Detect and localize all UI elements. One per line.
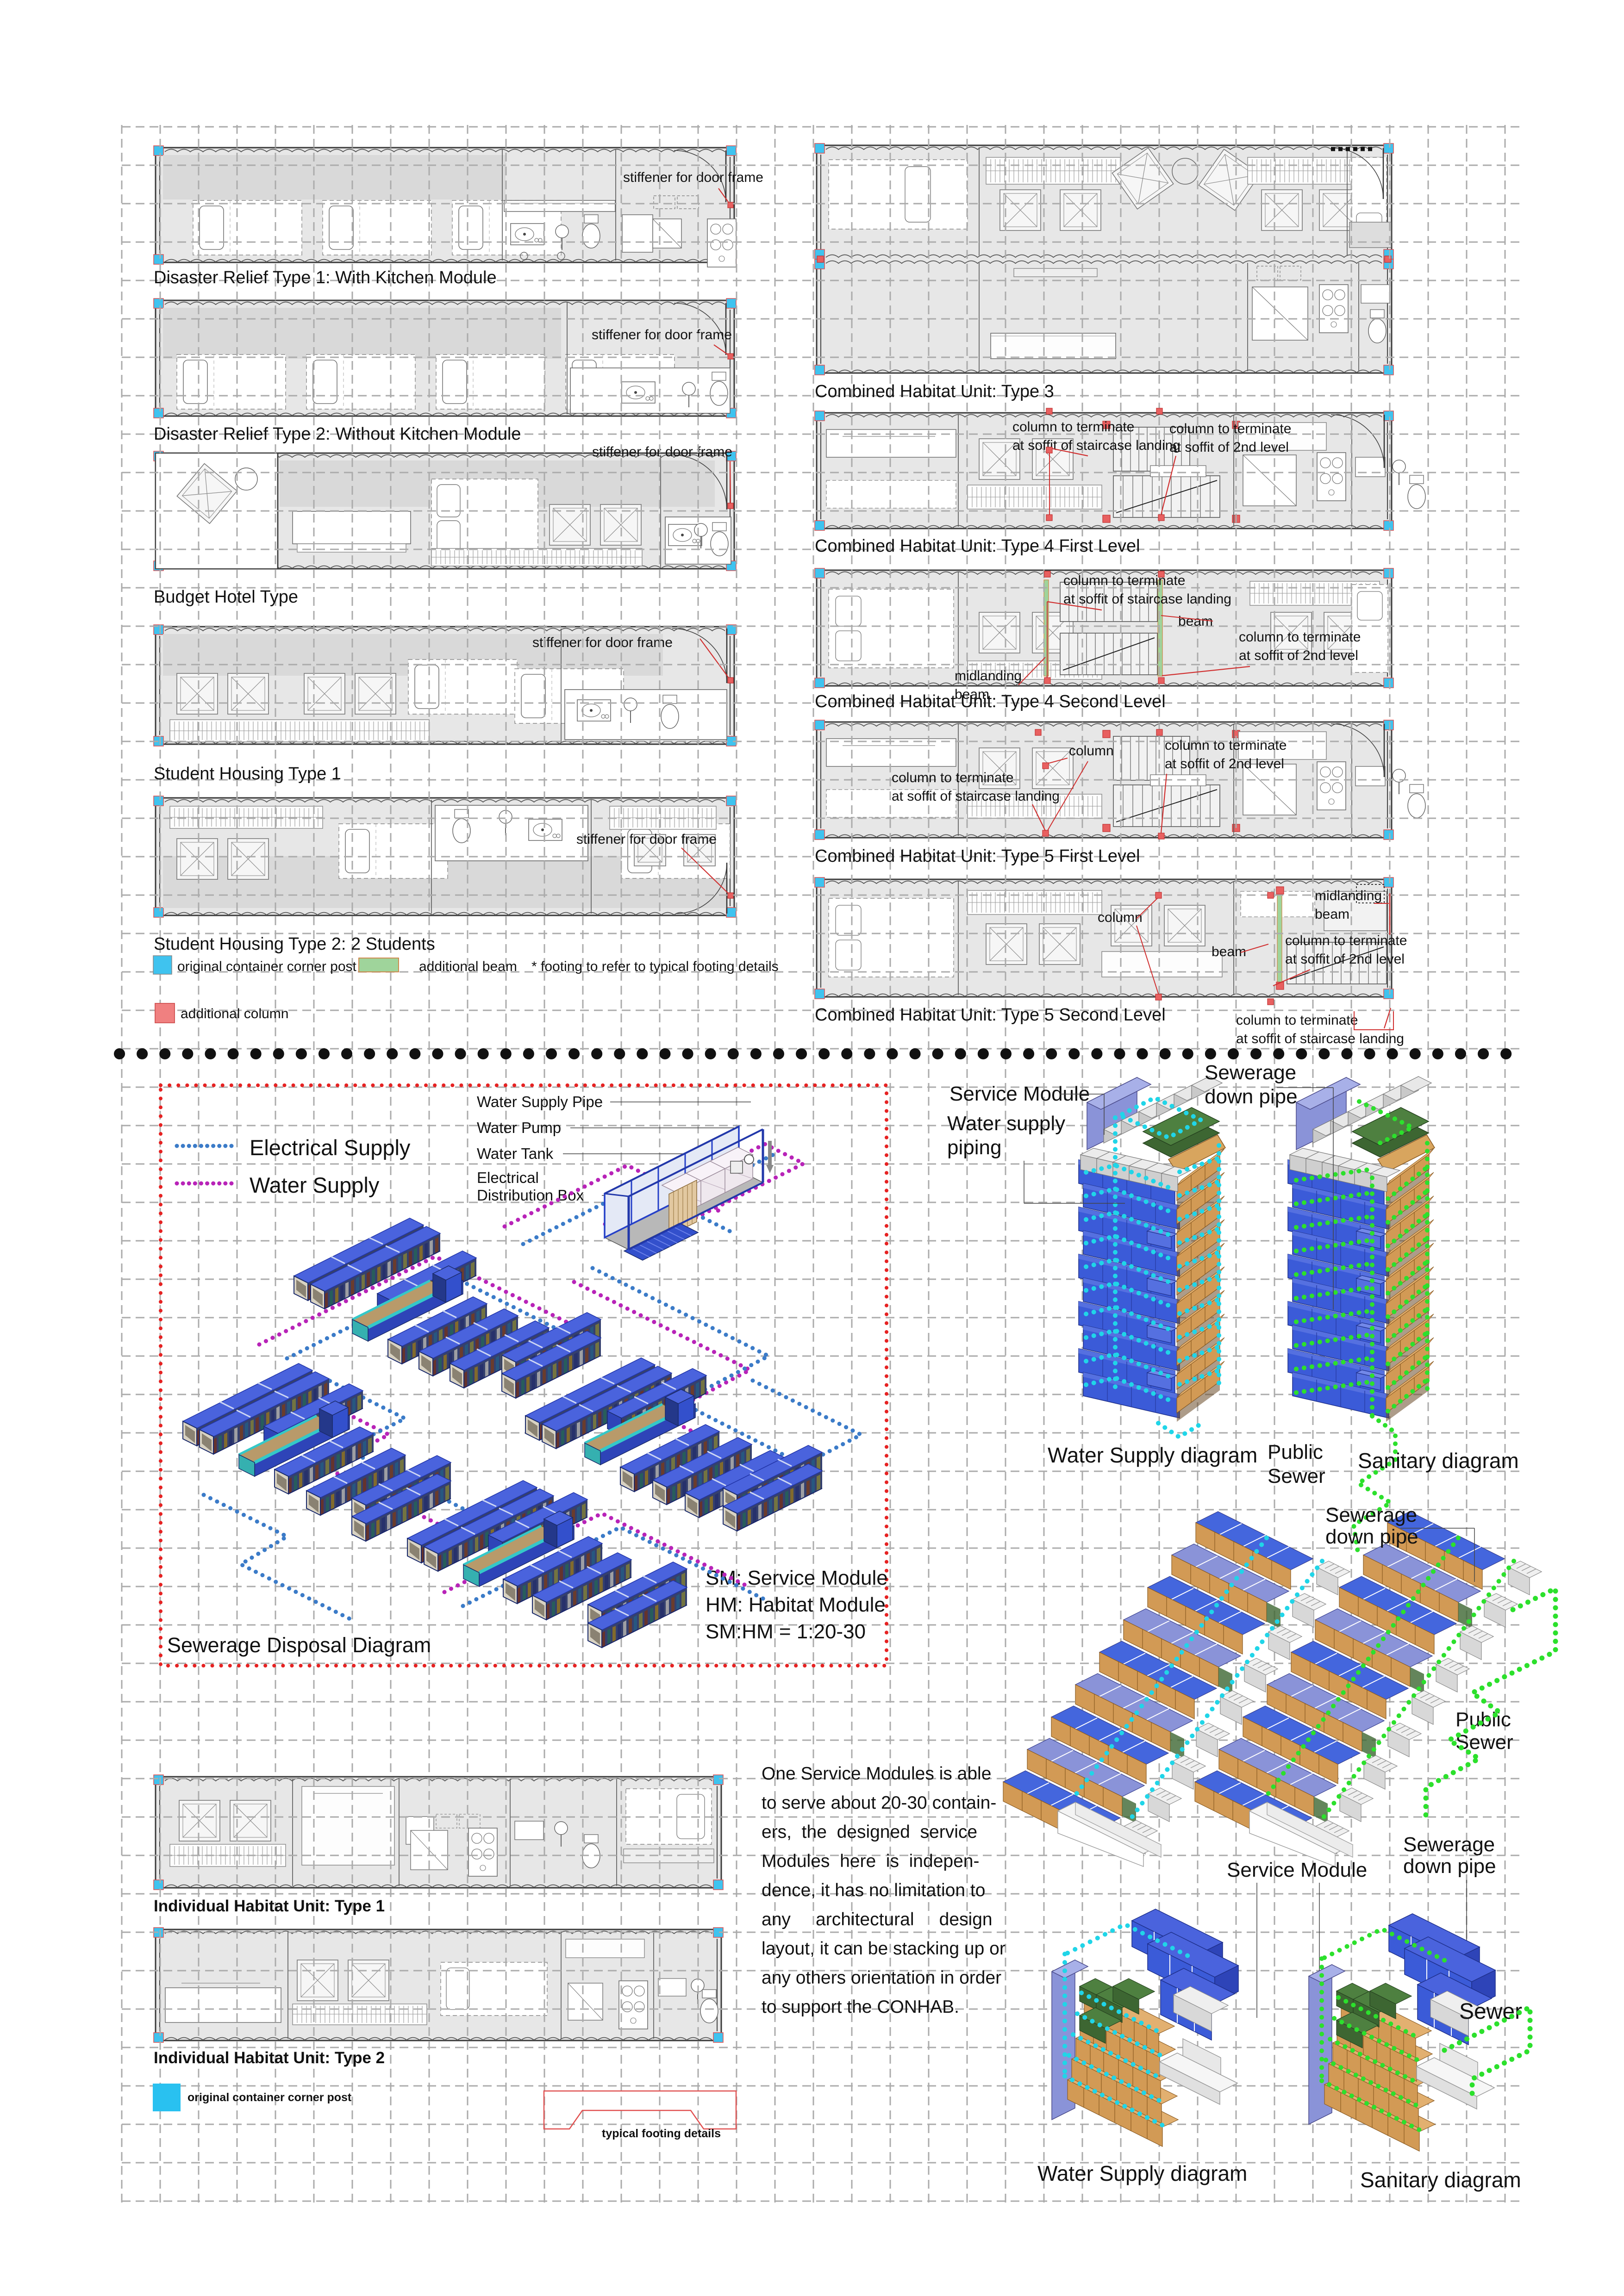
svg-text:* footing to refer to typical: * footing to refer to typical footing de… xyxy=(531,959,779,974)
svg-text:column to terminate: column to terminate xyxy=(1285,933,1407,948)
svg-text:to support the CONHAB.: to support the CONHAB. xyxy=(762,1997,959,2017)
svg-text:Combined Habitat Unit: Type 5: Combined Habitat Unit: Type 5 Second Lev… xyxy=(815,1005,1166,1025)
svg-text:Water Supply diagram: Water Supply diagram xyxy=(1037,2161,1247,2185)
svg-text:stiffener for door frame: stiffener for door frame xyxy=(592,327,732,342)
svg-text:additional beam: additional beam xyxy=(419,959,517,974)
svg-text:at soffit of 2nd level: at soffit of 2nd level xyxy=(1285,952,1405,967)
svg-text:Public: Public xyxy=(1268,1441,1323,1463)
svg-text:at soffit of staircase landing: at soffit of staircase landing xyxy=(1236,1031,1404,1046)
svg-text:Water supply: Water supply xyxy=(947,1112,1065,1135)
svg-text:beam: beam xyxy=(955,687,989,702)
svg-text:original container corner post: original container corner post xyxy=(177,959,357,974)
svg-text:Student Housing Type 2: 2 Stud: Student Housing Type 2: 2 Students xyxy=(154,934,435,954)
svg-text:Sewerage: Sewerage xyxy=(1205,1061,1296,1084)
svg-text:piping: piping xyxy=(947,1136,1001,1159)
svg-text:stiffener for door frame: stiffener for door frame xyxy=(623,170,763,185)
svg-text:column to terminate: column to terminate xyxy=(1236,1013,1358,1028)
svg-text:typical footing details: typical footing details xyxy=(602,2127,721,2140)
svg-text:SM:HM = 1:20-30: SM:HM = 1:20-30 xyxy=(706,1620,866,1643)
svg-text:column: column xyxy=(1069,743,1114,759)
svg-text:Combined Habitat Unit: Type 4: Combined Habitat Unit: Type 4 First Leve… xyxy=(815,536,1140,556)
svg-text:column to terminate: column to terminate xyxy=(1063,573,1185,588)
svg-text:Disaster Relief Type 1: With K: Disaster Relief Type 1: With Kitchen Mod… xyxy=(154,268,497,287)
svg-text:Budget Hotel Type: Budget Hotel Type xyxy=(154,587,298,607)
svg-text:Individual Habitat Unit: Type: Individual Habitat Unit: Type 1 xyxy=(154,1897,385,1915)
svg-text:original container corner post: original container corner post xyxy=(187,2091,352,2104)
svg-text:Sewer: Sewer xyxy=(1268,1465,1325,1487)
svg-text:Electrical Supply: Electrical Supply xyxy=(250,1135,411,1160)
svg-text:Modules here is indepen-: Modules here is indepen- xyxy=(762,1851,979,1871)
svg-text:Electrical: Electrical xyxy=(477,1169,539,1186)
svg-text:column to terminate: column to terminate xyxy=(1239,629,1361,645)
svg-text:Individual Habitat Unit: Type: Individual Habitat Unit: Type 2 xyxy=(154,2049,385,2067)
svg-text:any others orientation in orde: any others orientation in order xyxy=(762,1968,1001,1988)
svg-text:ers, the designed service: ers, the designed service xyxy=(762,1822,977,1842)
svg-text:Sewer: Sewer xyxy=(1455,1731,1513,1754)
svg-text:Service Module: Service Module xyxy=(1227,1859,1367,1881)
svg-text:Water Supply: Water Supply xyxy=(250,1173,380,1197)
svg-text:One Service Modules is able: One Service Modules is able xyxy=(762,1764,991,1784)
svg-text:beam: beam xyxy=(1178,614,1213,629)
svg-text:column to terminate: column to terminate xyxy=(1169,421,1291,436)
svg-text:Combined Habitat Unit: Type 4: Combined Habitat Unit: Type 4 Second Lev… xyxy=(815,692,1166,711)
svg-text:any architectural desi: any architectural design xyxy=(762,1910,993,1929)
svg-text:Water Supply Pipe: Water Supply Pipe xyxy=(477,1093,603,1110)
svg-text:down pipe: down pipe xyxy=(1403,1855,1496,1878)
svg-text:stiffener for door frame: stiffener for door frame xyxy=(592,444,732,460)
svg-text:Sewerage: Sewerage xyxy=(1403,1833,1495,1856)
svg-text:Sanitary diagram: Sanitary diagram xyxy=(1360,2168,1521,2192)
svg-text:Public: Public xyxy=(1455,1708,1511,1731)
svg-text:HM: Habitat Module: HM: Habitat Module xyxy=(706,1593,886,1616)
svg-text:column: column xyxy=(1098,910,1143,925)
svg-text:additional column: additional column xyxy=(181,1006,288,1021)
svg-text:Combined Habitat Unit: Type 5: Combined Habitat Unit: Type 5 First Leve… xyxy=(815,846,1140,866)
svg-text:Sewer: Sewer xyxy=(1459,1999,1522,2024)
svg-text:column to terminate: column to terminate xyxy=(1012,419,1134,435)
svg-text:Disaster Relief Type 2: Withou: Disaster Relief Type 2: Without Kitchen … xyxy=(154,424,521,444)
svg-text:down pipe: down pipe xyxy=(1205,1085,1298,1108)
svg-text:at soffit of 2nd level: at soffit of 2nd level xyxy=(1169,440,1289,455)
svg-text:Sewerage: Sewerage xyxy=(1325,1504,1417,1526)
svg-text:Student Housing Type 1: Student Housing Type 1 xyxy=(154,764,341,784)
svg-text:Sewerage Disposal Diagram: Sewerage Disposal Diagram xyxy=(167,1633,431,1657)
svg-text:column to terminate: column to terminate xyxy=(1165,738,1287,753)
svg-text:midlanding: midlanding xyxy=(955,668,1022,684)
svg-text:Water Tank: Water Tank xyxy=(477,1145,554,1162)
svg-text:dence, it has no limitation to: dence, it has no limitation to xyxy=(762,1880,985,1900)
svg-text:at soffit of staircase landing: at soffit of staircase landing xyxy=(1063,591,1231,607)
svg-text:to serve about 20-30 contain-: to serve about 20-30 contain- xyxy=(762,1793,996,1813)
svg-text:at soffit of 2nd level: at soffit of 2nd level xyxy=(1239,648,1358,663)
svg-text:Combined Habitat Unit: Type 3: Combined Habitat Unit: Type 3 xyxy=(815,382,1054,401)
svg-text:at soffit of 2nd level: at soffit of 2nd level xyxy=(1165,756,1284,772)
svg-text:stiffener for door frame: stiffener for door frame xyxy=(576,832,717,847)
svg-text:column to terminate: column to terminate xyxy=(892,770,1013,785)
svg-text:beam: beam xyxy=(1315,907,1349,922)
svg-text:at soffit of staircase landing: at soffit of staircase landing xyxy=(892,789,1060,804)
svg-text:Distribution Box: Distribution Box xyxy=(477,1187,584,1204)
svg-text:Sanitary diagram: Sanitary diagram xyxy=(1358,1449,1519,1473)
svg-text:Water Pump: Water Pump xyxy=(477,1119,561,1136)
svg-text:at soffit of staircase landing: at soffit of staircase landing xyxy=(1012,438,1181,453)
svg-text:layout, it can be stacking up: layout, it can be stacking up or xyxy=(762,1939,1006,1959)
svg-text:Water Supply diagram: Water Supply diagram xyxy=(1048,1443,1257,1467)
svg-text:stiffener for door frame: stiffener for door frame xyxy=(532,635,673,650)
svg-text:beam: beam xyxy=(1212,944,1246,959)
svg-text:midlanding: midlanding xyxy=(1315,888,1382,903)
svg-text:down pipe: down pipe xyxy=(1325,1525,1418,1548)
